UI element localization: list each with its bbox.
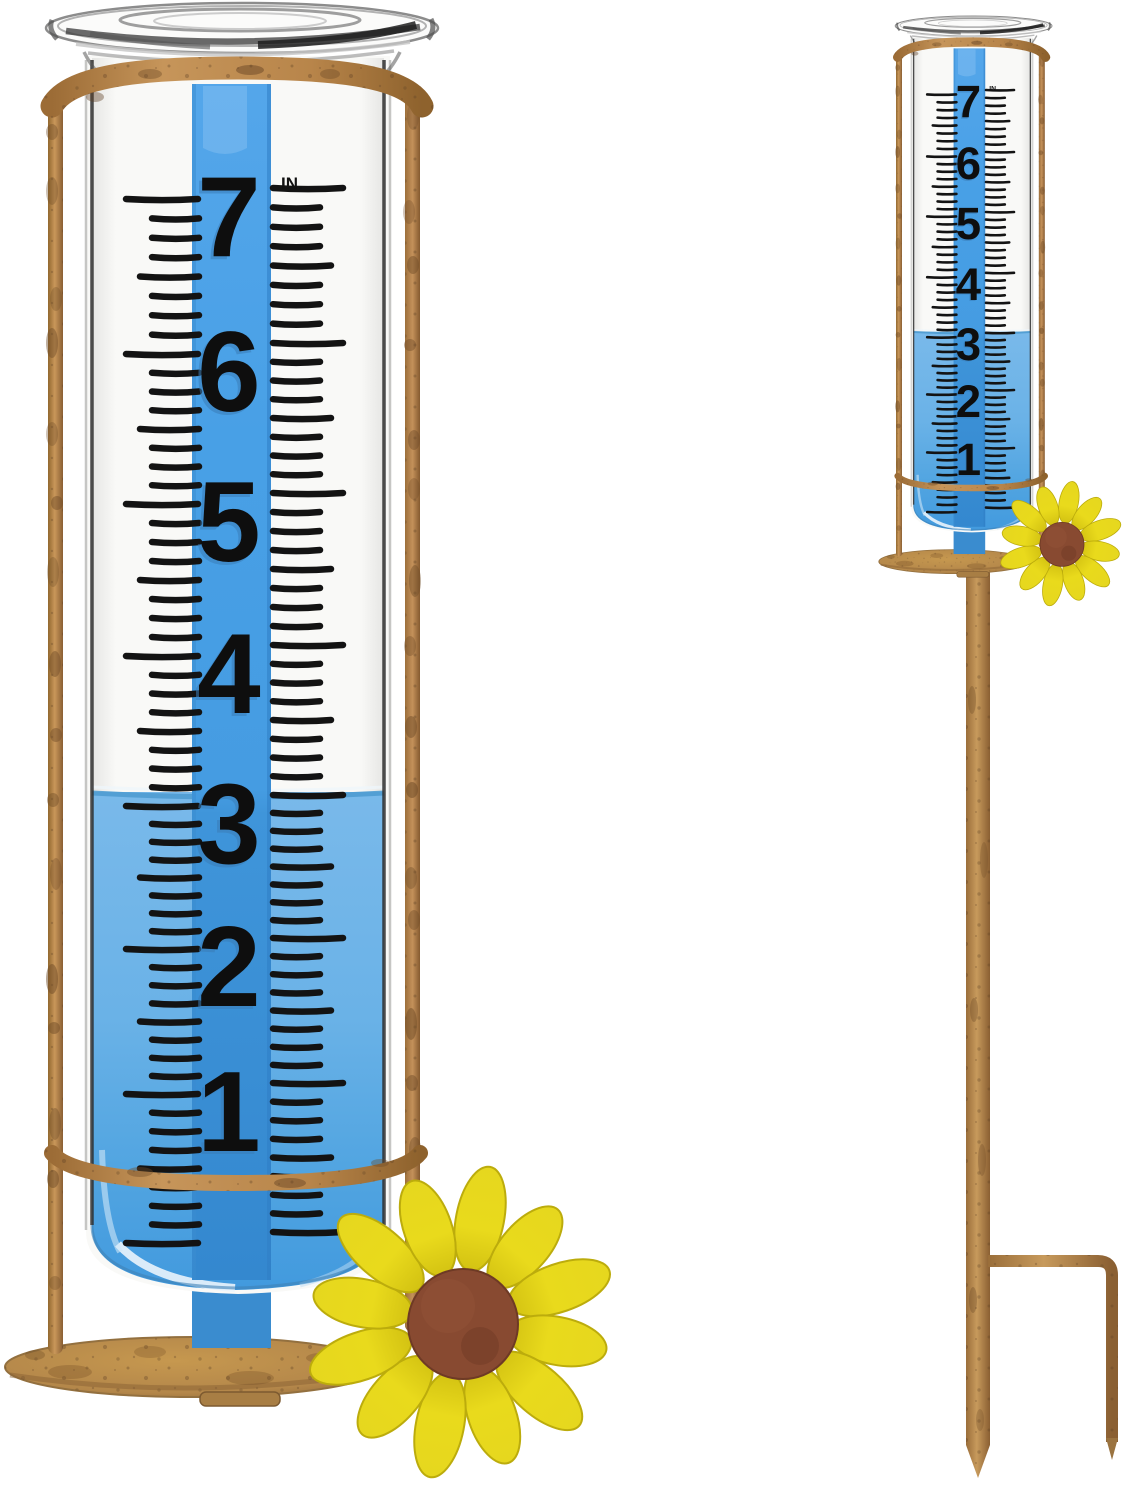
svg-text:IN.: IN. (281, 174, 303, 193)
svg-text:3: 3 (197, 761, 260, 888)
svg-text:7: 7 (197, 154, 260, 281)
svg-text:4: 4 (197, 611, 260, 738)
svg-text:IN.: IN. (989, 85, 998, 92)
svg-text:6: 6 (956, 138, 981, 189)
svg-text:2: 2 (956, 376, 981, 427)
svg-text:3: 3 (956, 319, 981, 370)
svg-text:7: 7 (956, 76, 981, 127)
svg-text:1: 1 (197, 1049, 260, 1176)
svg-text:5: 5 (197, 459, 260, 586)
svg-text:4: 4 (956, 259, 982, 310)
svg-text:6: 6 (197, 309, 260, 436)
svg-text:1: 1 (956, 434, 981, 485)
svg-text:2: 2 (197, 904, 260, 1031)
svg-text:5: 5 (956, 198, 981, 249)
